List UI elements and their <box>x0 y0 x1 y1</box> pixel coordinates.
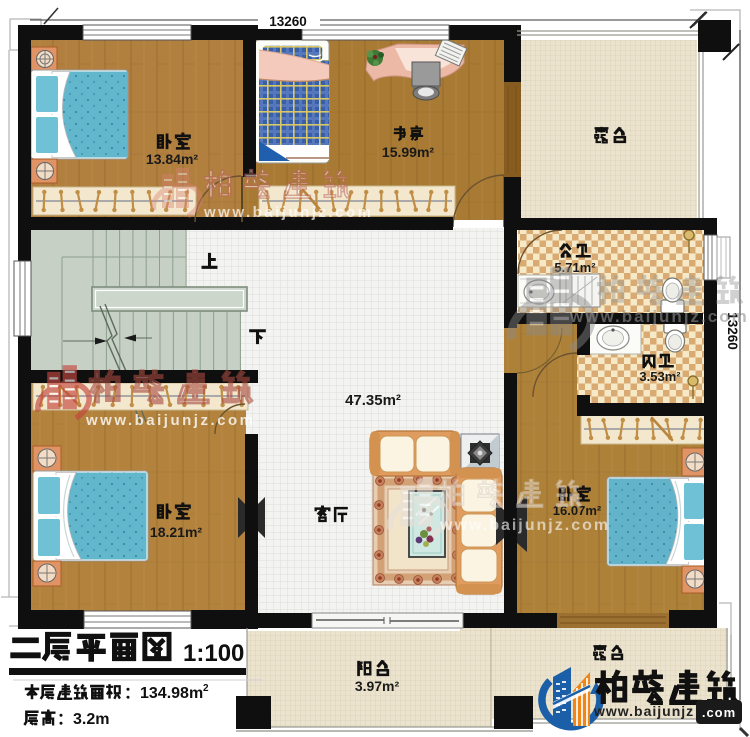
svg-text:15.99m²: 15.99m² <box>382 144 434 160</box>
svg-text:.com: .com <box>702 705 736 720</box>
svg-text:www.baijunjz: www.baijunjz <box>593 703 694 719</box>
svg-text:47.35m²: 47.35m² <box>345 392 401 409</box>
svg-text:www.baijunjz.com: www.baijunjz.com <box>203 204 373 221</box>
svg-text:www.baijunjz.com: www.baijunjz.com <box>85 412 255 429</box>
svg-text:www.baijunjz.com: www.baijunjz.com <box>569 307 749 326</box>
svg-text:13260: 13260 <box>269 14 307 29</box>
svg-text:18.21m²: 18.21m² <box>150 524 202 540</box>
svg-text:13.84m²: 13.84m² <box>146 151 198 167</box>
svg-text:www.baijunjz.com: www.baijunjz.com <box>439 517 610 534</box>
svg-text:：134.98m: ：134.98m <box>124 685 203 702</box>
svg-text:1:100: 1:100 <box>183 640 244 667</box>
svg-text:3.53m²: 3.53m² <box>639 369 681 384</box>
svg-text:：3.2m: ：3.2m <box>57 711 109 728</box>
svg-text:3.97m²: 3.97m² <box>355 678 400 694</box>
svg-text:2: 2 <box>203 683 209 694</box>
